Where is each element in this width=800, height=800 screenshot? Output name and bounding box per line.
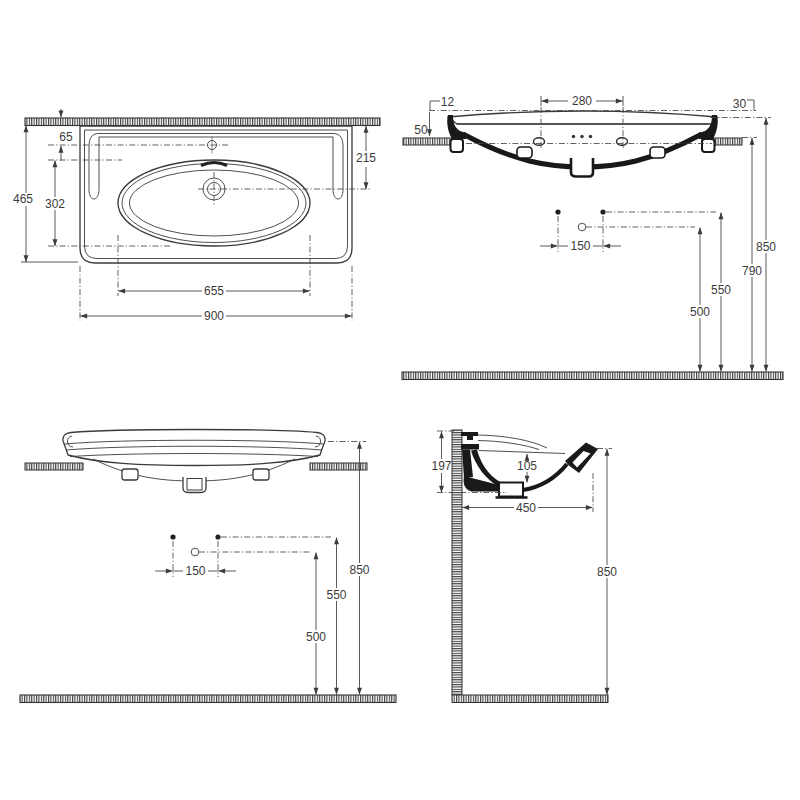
side-section-view: 197 105 450 850 [431, 430, 617, 703]
dim-rim-height: 850 [756, 118, 776, 372]
dim-label-655: 655 [204, 284, 224, 298]
deck-top-line [478, 435, 547, 448]
dim-label-850: 850 [756, 240, 776, 254]
back-ledge-bar [461, 444, 479, 450]
wall-hatch [452, 430, 462, 695]
dim-rim-height: 850 [597, 449, 617, 695]
dim-rim-rise-left: 12 [430, 95, 454, 111]
wall-hatch-left [403, 138, 452, 145]
dim-label-465: 465 [13, 192, 33, 206]
dim-outlet-height: 500 [690, 228, 710, 372]
dim-label-850: 850 [597, 565, 617, 579]
dim-label-30: 30 [733, 97, 747, 111]
drain-outlet-section [499, 483, 523, 497]
technical-drawing: 65 465 302 215 655 [0, 0, 800, 800]
wall-fixing-dot-right [600, 209, 605, 214]
dim-label-302: 302 [45, 197, 65, 211]
floor-hatch [20, 695, 396, 703]
right-foot [702, 139, 715, 152]
dim-label-280: 280 [572, 94, 592, 108]
left-foot [451, 139, 464, 152]
supply-outlet-circle [191, 548, 199, 556]
drain-outlet-section [571, 158, 593, 177]
dim-underside-height: 790 [742, 138, 762, 372]
dim-outlet-height: 500 [306, 553, 326, 695]
dim-label-550: 550 [326, 588, 346, 602]
back-wall-section [462, 450, 473, 479]
overflow-dot-2 [580, 135, 583, 138]
floor-hatch [452, 695, 608, 703]
dim-rim-rise-right: 30 [733, 97, 754, 111]
front-view: 150 500 550 850 [20, 430, 396, 703]
wall-hatch-left [25, 463, 83, 470]
dim-label-850: 850 [349, 563, 369, 577]
dim-label-50: 50 [414, 123, 428, 137]
left-fixing-hole [534, 138, 545, 146]
wall-hatch-plan [25, 118, 380, 126]
left-mount-lug [517, 147, 532, 158]
dim-projection: 450 [463, 473, 594, 515]
deck-surface-line [479, 451, 565, 454]
dim-bowl-depth: 302 [45, 161, 65, 247]
dim-label-150: 150 [570, 239, 590, 253]
dim-label-65: 65 [59, 130, 73, 144]
dim-label-215: 215 [356, 151, 376, 165]
front-section-view: 12 30 50 280 150 [402, 94, 783, 380]
dim-drain-to-wall: 215 [356, 126, 376, 189]
front-rim-section [565, 443, 598, 474]
dim-apron-height: 50 [414, 112, 429, 137]
dim-basin-depth: 105 [517, 454, 537, 483]
dim-label-105: 105 [517, 459, 537, 473]
right-fixing-hole [617, 138, 628, 146]
wall-hatch-right [310, 463, 367, 470]
dim-label-500: 500 [690, 305, 710, 319]
supply-outlet-circle [578, 223, 586, 231]
dim-label-197: 197 [431, 459, 451, 473]
dim-fixing-height: 550 [711, 213, 731, 372]
deck-section [448, 111, 717, 124]
dim-fixing-height: 550 [326, 538, 346, 695]
dim-label-150: 150 [185, 564, 205, 578]
technical-drawing-page: 65 465 302 215 655 [0, 0, 800, 800]
dim-total-depth: 465 [13, 126, 78, 263]
plan-view: 65 465 302 215 655 [13, 109, 380, 323]
dim-label-790: 790 [742, 264, 762, 278]
dim-label-450: 450 [516, 501, 536, 515]
drain-outlet-inner [187, 479, 202, 491]
dim-label-12: 12 [441, 95, 455, 109]
left-mount-lug [122, 469, 138, 480]
dim-label-500: 500 [306, 630, 326, 644]
right-mount-lug [253, 469, 269, 480]
wall-fixing-dot-right [215, 534, 220, 539]
right-mount-lug [650, 147, 665, 158]
dim-fixing-spacing: 150 [155, 564, 236, 578]
dim-fixing-spacing: 150 [540, 239, 621, 253]
dim-label-550: 550 [711, 283, 731, 297]
dim-rim-height: 850 [349, 442, 369, 695]
overflow-dot-1 [572, 135, 575, 138]
dim-label-900: 900 [204, 309, 224, 323]
wall-fixing-dot-left [170, 534, 175, 539]
overflow-dot-3 [589, 135, 592, 138]
wall-fixing-dot-left [555, 209, 560, 214]
back-rim-hook [461, 432, 478, 440]
dim-faucet-to-wall: 65 [59, 109, 73, 161]
floor-hatch [402, 372, 783, 380]
